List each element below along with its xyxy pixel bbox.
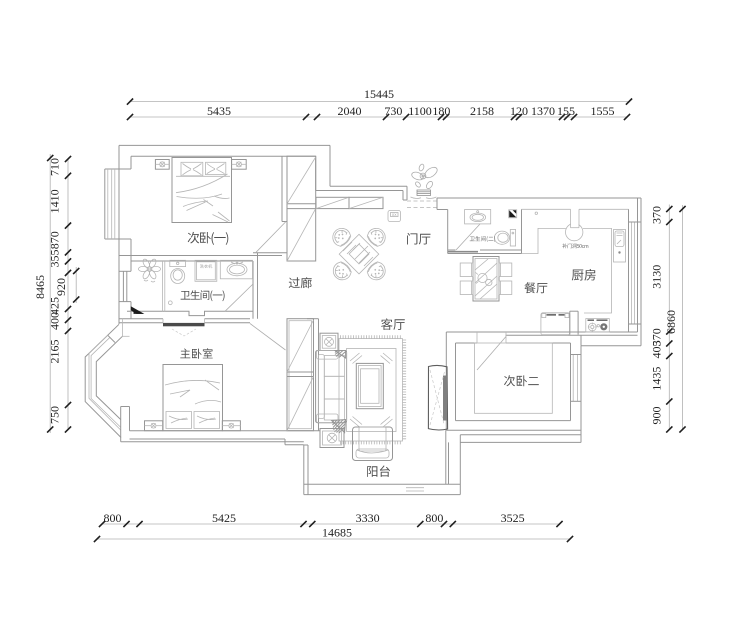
svg-text:2158: 2158	[470, 104, 494, 118]
svg-text:6860: 6860	[664, 310, 678, 334]
svg-text:1555: 1555	[591, 104, 615, 118]
svg-text:750: 750	[48, 406, 62, 424]
svg-text:1410: 1410	[48, 189, 62, 213]
svg-text:1435: 1435	[650, 367, 664, 391]
svg-text:800: 800	[425, 511, 443, 525]
svg-text:3130: 3130	[650, 265, 664, 289]
svg-text:120: 120	[510, 104, 528, 118]
svg-text:355: 355	[48, 250, 62, 268]
svg-text:3330: 3330	[356, 511, 380, 525]
svg-text:920: 920	[54, 278, 68, 296]
svg-text:710: 710	[48, 158, 62, 176]
svg-text:15445: 15445	[364, 87, 394, 101]
svg-text:XX: XX	[392, 213, 397, 217]
svg-text:180: 180	[432, 104, 450, 118]
svg-text:870: 870	[48, 231, 62, 249]
svg-text:800: 800	[104, 511, 122, 525]
svg-text:5435: 5435	[207, 104, 231, 118]
svg-text:900: 900	[650, 407, 664, 425]
svg-text:5425: 5425	[212, 511, 236, 525]
svg-text:3525: 3525	[501, 511, 525, 525]
svg-text:14685: 14685	[322, 525, 352, 539]
svg-text:370: 370	[650, 206, 664, 224]
svg-text:1100: 1100	[408, 104, 432, 118]
svg-text:405: 405	[650, 341, 664, 359]
svg-text:730: 730	[384, 104, 402, 118]
svg-text:155: 155	[557, 104, 575, 118]
svg-text:8465: 8465	[33, 275, 47, 299]
svg-text:2040: 2040	[338, 104, 362, 118]
svg-text:1370: 1370	[531, 104, 555, 118]
svg-text:400: 400	[48, 312, 62, 330]
svg-text:2165: 2165	[48, 340, 62, 364]
